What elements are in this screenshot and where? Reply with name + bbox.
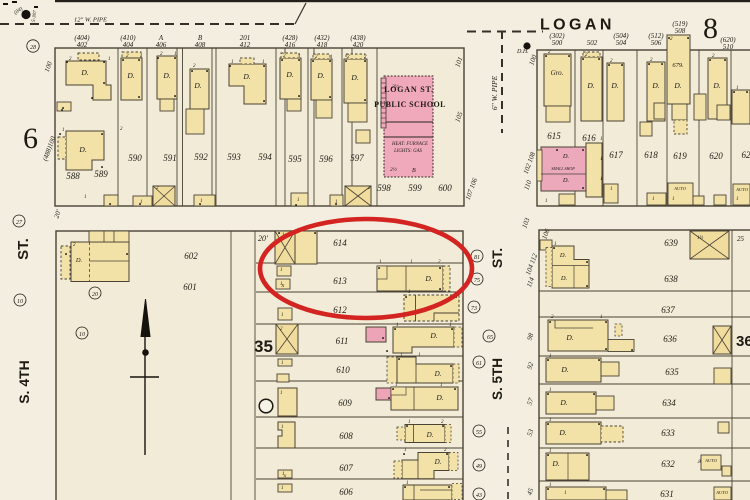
svg-text:D.: D. — [560, 275, 568, 282]
svg-text:AUTO: AUTO — [673, 186, 686, 191]
svg-text:1: 1 — [280, 268, 283, 273]
svg-text:1: 1 — [549, 354, 552, 359]
svg-text:1: 1 — [280, 391, 283, 396]
svg-text:D.: D. — [80, 68, 88, 77]
svg-text:D.: D. — [426, 431, 434, 439]
svg-text:D.: D. — [424, 274, 432, 283]
svg-text:510: 510 — [723, 43, 734, 51]
svg-text:35: 35 — [254, 337, 273, 356]
svg-text:1: 1 — [400, 353, 403, 358]
svg-text:D.: D. — [651, 81, 659, 90]
svg-text:610: 610 — [336, 365, 350, 375]
svg-text:408: 408 — [195, 41, 206, 49]
svg-text:1: 1 — [600, 177, 603, 182]
svg-text:D.: D. — [316, 71, 324, 80]
svg-text:HEAT: FURNACE: HEAT: FURNACE — [391, 142, 428, 147]
svg-text:LIGHTS: GAS: LIGHTS: GAS — [393, 149, 422, 154]
svg-text:1: 1 — [281, 313, 284, 318]
svg-text:402: 402 — [77, 41, 88, 49]
svg-text:406: 406 — [156, 41, 167, 49]
svg-text:614: 614 — [333, 238, 347, 248]
svg-text:1: 1 — [140, 54, 143, 59]
svg-text:418: 418 — [317, 41, 328, 49]
svg-text:1: 1 — [280, 282, 283, 287]
svg-text:1: 1 — [549, 418, 552, 423]
svg-text:607: 607 — [339, 463, 353, 473]
svg-text:1: 1 — [281, 425, 284, 430]
svg-text:SMALL SHOP: SMALL SHOP — [551, 166, 575, 171]
svg-text:1: 1 — [600, 315, 603, 320]
svg-text:416: 416 — [285, 41, 296, 49]
svg-text:632: 632 — [661, 459, 675, 469]
svg-text:AUTO: AUTO — [715, 490, 728, 495]
svg-text:620: 620 — [709, 151, 723, 161]
svg-text:1: 1 — [610, 187, 613, 192]
svg-text:D.: D. — [559, 252, 567, 259]
svg-text:593: 593 — [227, 152, 241, 162]
svg-text:1: 1 — [449, 323, 452, 328]
svg-text:599: 599 — [408, 183, 422, 193]
svg-text:49: 49 — [476, 463, 482, 470]
svg-text:1: 1 — [408, 290, 411, 295]
svg-text:412: 412 — [240, 41, 251, 49]
svg-text:1: 1 — [379, 260, 382, 265]
svg-text:75: 75 — [474, 278, 480, 284]
svg-text:1: 1 — [554, 242, 557, 247]
svg-text:1: 1 — [440, 383, 443, 388]
svg-text:D.: D. — [429, 331, 437, 340]
svg-text:D.: D. — [193, 81, 201, 90]
svg-text:1: 1 — [404, 448, 407, 453]
svg-text:2½: 2½ — [392, 83, 399, 90]
svg-text:D.: D. — [126, 71, 134, 80]
svg-text:6" W. PIPE: 6" W. PIPE — [490, 75, 499, 110]
svg-text:1: 1 — [140, 200, 143, 205]
svg-text:618: 618 — [644, 150, 658, 160]
svg-text:D.: D. — [434, 458, 442, 466]
svg-text:PUBLIC SCHOOL: PUBLIC SCHOOL — [374, 100, 446, 109]
svg-text:591: 591 — [163, 153, 177, 163]
svg-text:602: 602 — [184, 251, 198, 261]
svg-text:28: 28 — [30, 45, 36, 51]
svg-text:508: 508 — [675, 27, 686, 35]
svg-text:597: 597 — [350, 153, 364, 163]
svg-text:1: 1 — [736, 197, 739, 202]
svg-text:D.: D. — [285, 70, 293, 79]
svg-text:AUTO: AUTO — [704, 458, 717, 463]
svg-text:25: 25 — [737, 235, 745, 243]
svg-text:1: 1 — [297, 198, 300, 203]
svg-text:1: 1 — [62, 128, 65, 133]
svg-text:611: 611 — [336, 336, 349, 346]
svg-text:615: 615 — [547, 131, 561, 141]
svg-text:ST.: ST. — [489, 248, 505, 268]
svg-text:55: 55 — [476, 430, 482, 436]
svg-text:81: 81 — [474, 255, 480, 261]
svg-text:1: 1 — [335, 200, 338, 205]
svg-text:608: 608 — [339, 431, 353, 441]
svg-text:ST.: ST. — [15, 238, 32, 260]
svg-text:12" W. PIPE: 12" W. PIPE — [74, 17, 107, 24]
svg-text:612: 612 — [333, 305, 347, 315]
svg-text:1: 1 — [652, 197, 655, 202]
svg-text:D.: D. — [434, 370, 442, 378]
svg-text:1: 1 — [84, 195, 87, 200]
svg-text:1: 1 — [282, 472, 285, 477]
svg-text:1: 1 — [564, 491, 567, 496]
svg-text:590: 590 — [128, 153, 142, 163]
svg-text:588: 588 — [66, 171, 80, 181]
svg-text:1: 1 — [549, 449, 552, 454]
svg-text:B: B — [412, 168, 416, 174]
svg-text:601: 601 — [183, 282, 197, 292]
svg-text:Gro.: Gro. — [551, 69, 564, 77]
svg-text:S. 5TH: S. 5TH — [490, 358, 505, 400]
svg-text:AUTO: AUTO — [735, 187, 748, 192]
svg-text:1: 1 — [549, 388, 552, 393]
svg-text:506: 506 — [651, 39, 662, 47]
svg-text:D.: D. — [610, 81, 618, 90]
svg-text:1: 1 — [418, 353, 421, 358]
svg-text:1: 1 — [549, 483, 552, 488]
svg-text:27: 27 — [16, 220, 23, 226]
svg-text:1: 1 — [108, 57, 111, 62]
svg-text:10: 10 — [79, 332, 85, 338]
svg-text:639: 639 — [664, 238, 678, 248]
svg-text:600: 600 — [438, 183, 452, 193]
svg-text:1: 1 — [298, 54, 301, 59]
svg-text:619: 619 — [673, 151, 687, 161]
svg-text:61: 61 — [476, 361, 482, 367]
svg-text:D.: D. — [560, 365, 568, 374]
svg-text:420: 420 — [353, 41, 364, 49]
svg-text:D.: D. — [242, 72, 250, 81]
svg-text:631: 631 — [660, 489, 674, 499]
svg-text:1: 1 — [545, 199, 548, 204]
svg-text:1: 1 — [672, 197, 675, 202]
svg-text:613: 613 — [333, 276, 347, 286]
svg-text:65: 65 — [487, 335, 493, 341]
svg-text:594: 594 — [258, 152, 272, 162]
svg-text:636: 636 — [663, 334, 677, 344]
svg-text:1: 1 — [410, 260, 413, 265]
svg-text:1: 1 — [406, 481, 409, 486]
svg-text:D.: D. — [712, 81, 720, 90]
svg-text:D.: D. — [75, 257, 83, 264]
svg-text:1: 1 — [408, 420, 411, 425]
svg-text:1: 1 — [330, 55, 333, 60]
svg-text:.8: .8 — [697, 460, 701, 465]
svg-text:1: 1 — [281, 486, 284, 491]
svg-text:598: 598 — [377, 183, 391, 193]
svg-text:D.: D. — [673, 81, 681, 90]
svg-text:592: 592 — [194, 152, 208, 162]
svg-text:D.: D. — [565, 333, 573, 342]
svg-text:679.: 679. — [672, 62, 684, 69]
svg-text:D.: D. — [350, 73, 358, 82]
svg-text:D.H.: D.H. — [516, 49, 529, 55]
svg-text:8: 8 — [703, 12, 718, 45]
svg-text:1: 1 — [200, 199, 203, 204]
svg-text:1: 1 — [174, 52, 177, 57]
svg-text:1: 1 — [395, 383, 398, 388]
svg-text:D.: D. — [162, 71, 170, 80]
svg-text:1½: 1½ — [697, 236, 704, 241]
svg-text:43: 43 — [476, 492, 482, 499]
svg-text:1: 1 — [281, 361, 284, 366]
svg-text:616: 616 — [582, 133, 596, 143]
svg-text:1: 1 — [396, 323, 399, 328]
svg-text:D.: D. — [558, 428, 566, 437]
svg-text:606: 606 — [339, 487, 353, 497]
svg-text:D.: D. — [435, 393, 443, 402]
svg-text:73: 73 — [471, 306, 477, 312]
svg-text:589: 589 — [94, 169, 108, 179]
svg-text:20: 20 — [92, 292, 98, 298]
svg-text:10: 10 — [17, 299, 23, 305]
svg-text:504: 504 — [616, 39, 627, 47]
svg-text:500: 500 — [552, 39, 563, 47]
svg-text:D.: D. — [586, 81, 594, 90]
svg-text:D.: D. — [78, 145, 86, 154]
svg-text:595: 595 — [288, 154, 302, 164]
svg-text:LOGAN: LOGAN — [540, 17, 615, 34]
svg-text:635: 635 — [665, 367, 679, 377]
svg-text:638: 638 — [664, 274, 678, 284]
svg-text:D.: D. — [562, 153, 570, 160]
svg-text:D.: D. — [562, 177, 570, 184]
svg-text:609: 609 — [338, 398, 352, 408]
svg-text:6: 6 — [23, 122, 38, 155]
svg-text:D.: D. — [559, 398, 567, 407]
svg-text:1: 1 — [231, 60, 234, 65]
svg-text:404: 404 — [123, 41, 134, 49]
svg-text:1: 1 — [736, 86, 739, 91]
svg-text:502: 502 — [587, 39, 598, 47]
svg-text:1: 1 — [600, 137, 603, 142]
svg-text:1: 1 — [600, 157, 603, 162]
svg-text:596: 596 — [319, 154, 333, 164]
svg-text:S. 4TH: S. 4TH — [16, 360, 32, 404]
svg-text:20': 20' — [258, 234, 268, 243]
svg-text:637: 637 — [661, 305, 675, 315]
svg-text:1: 1 — [262, 60, 265, 65]
svg-text:633: 633 — [661, 428, 675, 438]
svg-text:2½: 2½ — [390, 166, 397, 173]
svg-text:36: 36 — [736, 333, 750, 350]
svg-text:634: 634 — [662, 398, 676, 408]
svg-text:D.: D. — [551, 459, 559, 468]
svg-text:62: 62 — [742, 150, 750, 160]
svg-text:617: 617 — [609, 150, 623, 160]
